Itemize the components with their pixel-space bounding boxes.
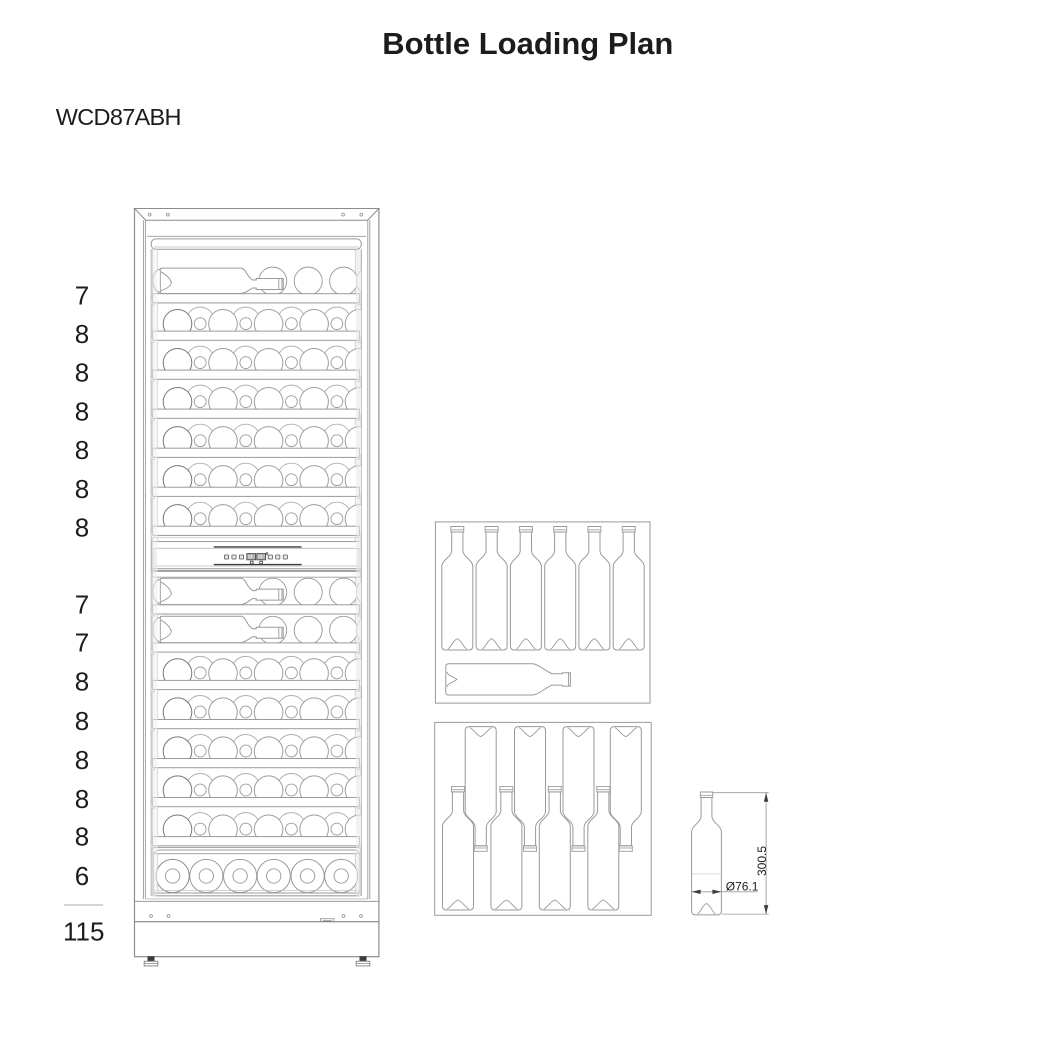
svg-text:8: 8 [75,513,89,543]
svg-text:8: 8 [75,745,89,775]
svg-text:WCD87ABH: WCD87ABH [56,104,181,130]
svg-text:8: 8 [75,319,89,349]
svg-text:7: 7 [75,590,89,620]
svg-text:300.5: 300.5 [755,846,769,876]
svg-text:8: 8 [75,474,89,504]
svg-text:8: 8 [75,784,89,814]
svg-text:7: 7 [75,281,89,311]
svg-text:8: 8 [75,358,89,388]
svg-text:8: 8 [75,435,89,465]
svg-text:Bottle Loading Plan: Bottle Loading Plan [382,26,673,61]
svg-text:115: 115 [63,917,104,947]
svg-text:8: 8 [75,397,89,427]
svg-text:8: 8 [75,706,89,736]
svg-text:7: 7 [75,628,89,658]
svg-text:8: 8 [75,667,89,697]
svg-text:8: 8 [75,822,89,852]
svg-text:Ø76.1: Ø76.1 [726,880,759,894]
svg-text:6: 6 [75,861,89,891]
